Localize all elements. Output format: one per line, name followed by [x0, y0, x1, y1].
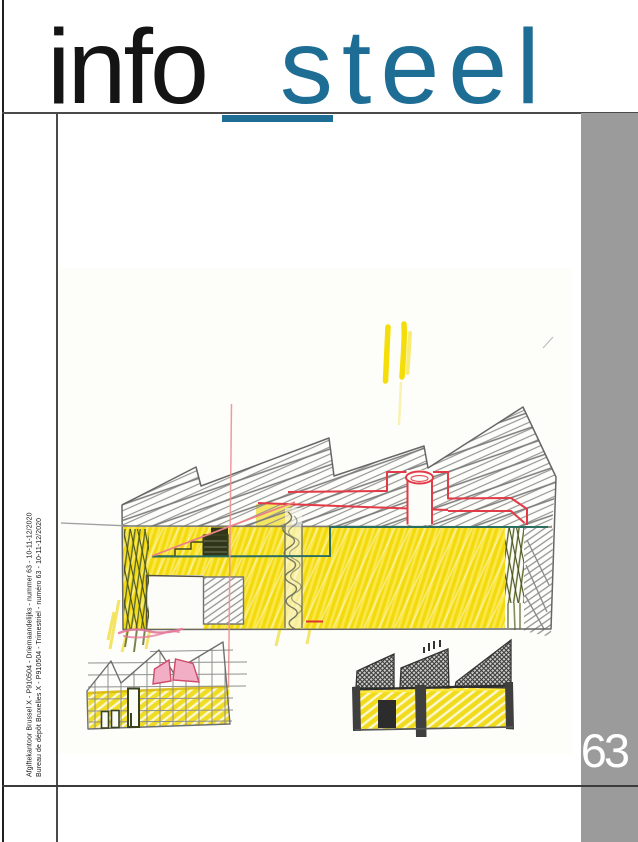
pink-roof: [173, 659, 199, 682]
pink-vertical-line: [229, 404, 232, 688]
title-word-info: info: [47, 8, 206, 126]
sawtooth-roof-outline: [122, 407, 556, 630]
study-sketch-right: [352, 640, 514, 737]
spine-line-nl: Afgiftekantoor Brussel X - P910504 - Dri…: [25, 529, 34, 777]
building-sketch: [0, 0, 638, 842]
red-duct-chimney: [152, 470, 527, 622]
spine-imprint: Afgiftekantoor Brussel X - P910504 - Dri…: [25, 529, 44, 777]
teal-line: [152, 527, 548, 557]
title-word-steel: steel: [280, 8, 549, 126]
sketch-paper: [58, 268, 572, 754]
pink-roof: [153, 660, 171, 684]
main-hall-sketch: [61, 404, 556, 688]
dark-door: [378, 700, 396, 728]
left-inner-rule: [56, 112, 58, 842]
issue-number: 63: [581, 727, 627, 774]
steps-shape: [157, 528, 228, 557]
left-outer-rule: [2, 0, 4, 842]
masthead-title: infosteel: [47, 14, 549, 120]
study-sketch-left: [87, 629, 247, 731]
title-underscore: [222, 115, 333, 122]
hatched-door: [204, 577, 244, 624]
spine-line-fr: Bureau de dépôt Bruxelles X - P910504 - …: [35, 529, 44, 777]
olive-columns: [124, 508, 524, 652]
magazine-cover: infosteel 63 Afgiftekantoor Brussel X - …: [0, 0, 638, 842]
sky-yellow-strokes: [386, 324, 554, 424]
bottom-rule: [2, 785, 638, 787]
